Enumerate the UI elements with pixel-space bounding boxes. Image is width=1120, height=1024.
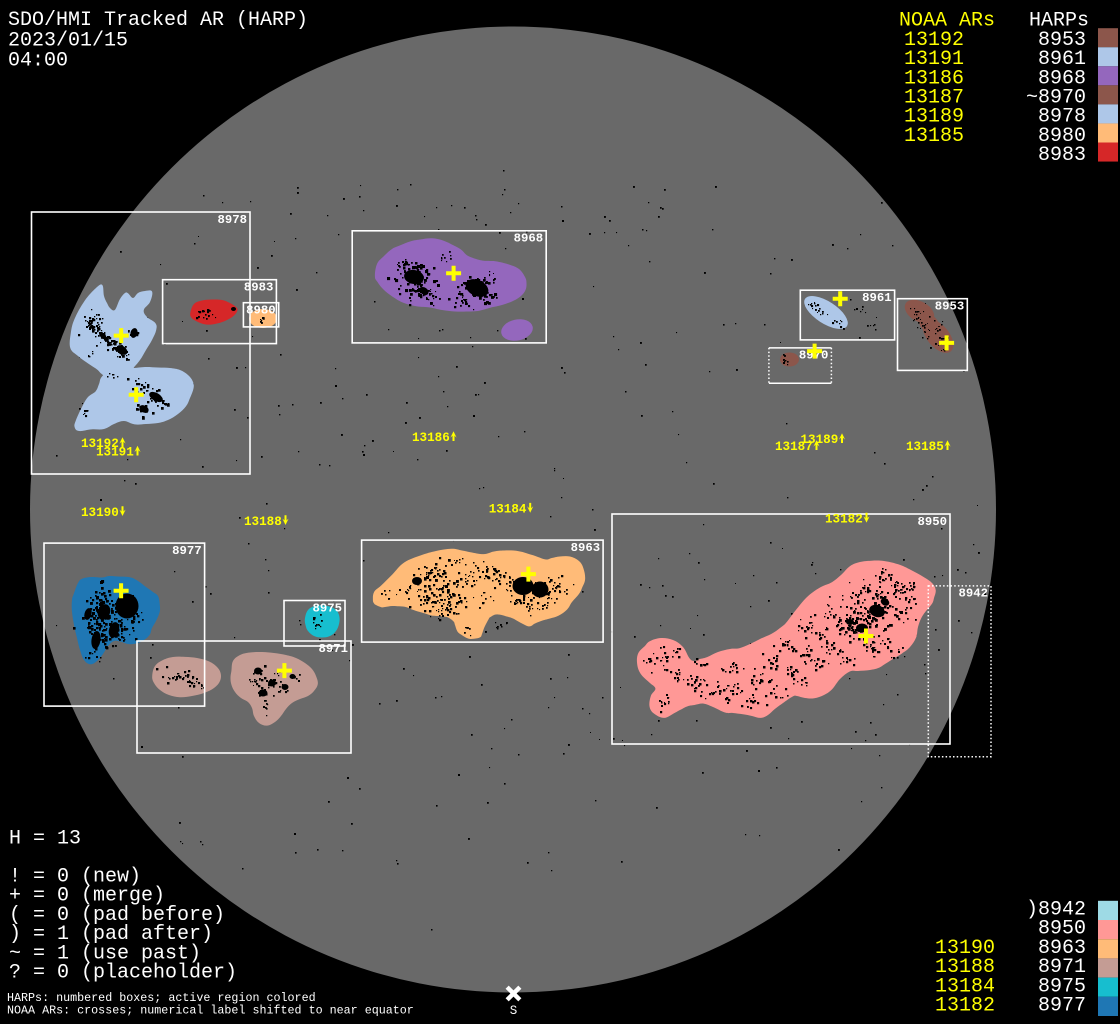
- svg-text:8950: 8950: [917, 515, 947, 529]
- svg-text:8980: 8980: [246, 304, 276, 318]
- svg-text:13185: 13185: [904, 125, 964, 148]
- svg-text:8968: 8968: [514, 232, 544, 246]
- svg-text:13185: 13185: [906, 440, 944, 454]
- svg-text:8961: 8961: [862, 291, 892, 305]
- svg-text:13188: 13188: [244, 515, 282, 529]
- svg-text:? = 0 (placeholder): ? = 0 (placeholder): [9, 962, 237, 985]
- svg-text:8942: 8942: [958, 587, 988, 601]
- svg-text:8975: 8975: [312, 601, 342, 615]
- svg-text:H = 13: H = 13: [9, 828, 81, 851]
- svg-text:13189: 13189: [801, 433, 839, 447]
- svg-text:S: S: [510, 1004, 518, 1018]
- svg-text:8978: 8978: [217, 213, 247, 227]
- svg-text:13190: 13190: [81, 506, 119, 520]
- svg-text:13182: 13182: [825, 513, 863, 527]
- svg-text:8983: 8983: [244, 281, 274, 295]
- svg-text:8977: 8977: [1038, 995, 1086, 1018]
- svg-text:13191: 13191: [96, 446, 134, 460]
- svg-text:13184: 13184: [489, 503, 527, 517]
- svg-text:8971: 8971: [318, 642, 348, 656]
- svg-text:8983: 8983: [1038, 144, 1086, 167]
- svg-text:04:00: 04:00: [8, 50, 68, 73]
- svg-text:NOAA ARs: crosses; numerical l: NOAA ARs: crosses; numerical label shift…: [7, 1004, 414, 1018]
- svg-text:8963: 8963: [571, 541, 601, 555]
- svg-text:13186: 13186: [412, 431, 450, 445]
- svg-text:8977: 8977: [172, 544, 202, 558]
- svg-text:13182: 13182: [935, 995, 995, 1018]
- svg-text:8953: 8953: [935, 300, 965, 314]
